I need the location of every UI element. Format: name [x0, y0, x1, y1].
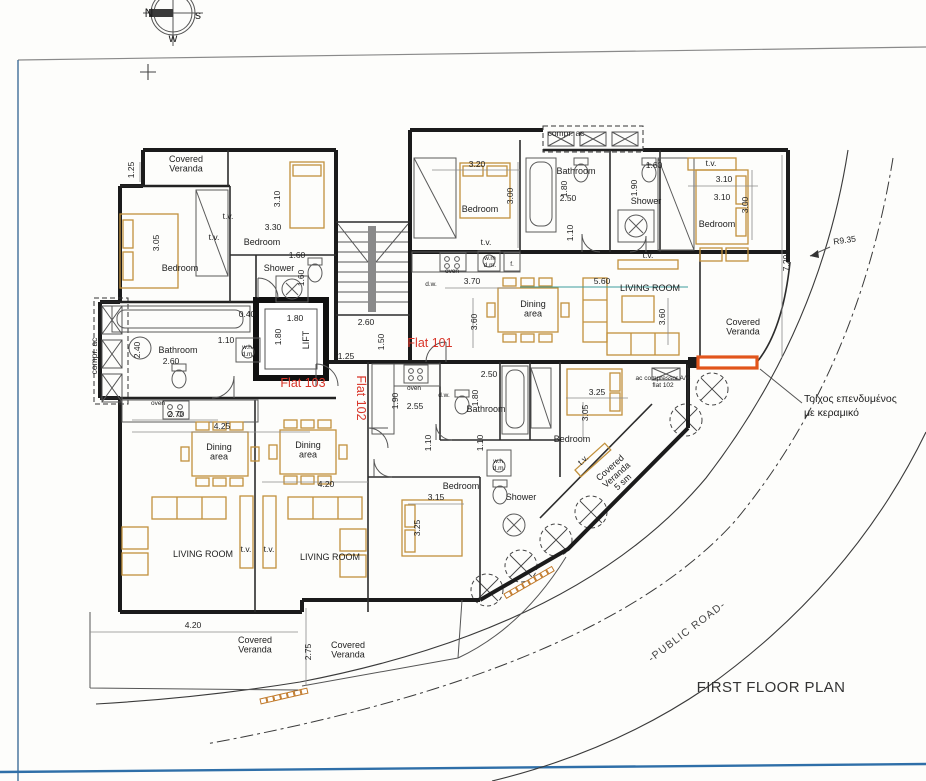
- appliance-fridge: f.: [510, 261, 514, 268]
- appliance-wm-dm: w.md.m.: [483, 255, 496, 269]
- dim-2-55: 2.55: [407, 401, 424, 411]
- dim-3-05: 3.05: [151, 234, 161, 251]
- tv-label: t.v.: [264, 544, 275, 554]
- appliance-oven-101: oven: [445, 268, 459, 275]
- dim-3-00: 3.00: [505, 187, 515, 204]
- dim-7-20: 7.20: [781, 254, 791, 271]
- appliance-dw-101: d.w.: [425, 281, 437, 288]
- room-covered-veranda-sw: CoveredVeranda: [238, 635, 272, 655]
- dim-2-50-bath: 2.50: [560, 193, 577, 203]
- sofa-set: [583, 260, 679, 355]
- tv-label-diag: t.v.: [576, 452, 591, 467]
- bed: [120, 214, 178, 288]
- dim-1-60b: 1.60: [296, 269, 306, 286]
- stairs: [338, 224, 408, 312]
- bed: [402, 500, 462, 556]
- dim-2-50-102: 2.50: [481, 369, 498, 379]
- room-covered-veranda-e: CoveredVeranda: [726, 317, 760, 337]
- dim-lift-w: 1.80: [287, 313, 304, 323]
- drawing-title: FIRST FLOOR PLAN: [697, 679, 846, 696]
- dim-3-30: 3.30: [265, 222, 282, 232]
- appliance-wh-dm-102: w.h.d.m.: [492, 458, 505, 472]
- room-bedroom-101a: Bedroom: [462, 204, 499, 214]
- tv-unit: [240, 496, 253, 568]
- dim-3-25-small: 3.25: [412, 519, 422, 536]
- dim-3-20: 3.20: [469, 159, 486, 169]
- dim-1-25-hall: 1.25: [338, 351, 355, 361]
- tv-label: t.v.: [706, 158, 717, 168]
- radius-label: R9.35: [833, 233, 857, 246]
- dim-3-60w: 3.60: [469, 313, 479, 330]
- compass-s: s: [195, 8, 201, 22]
- dim-1-60-shower: 1.60: [646, 160, 663, 170]
- dim-5-60: 5.60: [594, 276, 611, 286]
- floor-plan-page: N s w Flat 101 Flat 102 Flat 103 R9.35 Τ…: [0, 0, 926, 781]
- room-shower-103: Shower: [264, 263, 295, 273]
- dim-1-90-102: 1.90: [390, 392, 400, 409]
- flat-103-label: Flat 103: [280, 376, 325, 390]
- flat-102-label: Flat 102: [354, 375, 368, 420]
- dimension-lines: [90, 155, 782, 686]
- dim-1-25: 1.25: [126, 161, 136, 178]
- room-bathroom-101: Bathroom: [556, 166, 595, 176]
- ac-compressor-note: ac compressor A/Cflat 102: [636, 375, 691, 389]
- tv-label: t.v.: [223, 211, 234, 221]
- wall-note-line1: Τοίχος επενδυμένος: [804, 393, 897, 405]
- dim-3-15: 3.15: [428, 492, 445, 502]
- dim-2-70: 2.70: [168, 409, 185, 419]
- dim-3-25-bed: 3.25: [589, 387, 606, 397]
- dim-1-60: 1.60: [289, 250, 306, 260]
- public-road-label: -PUBLIC ROAD-: [646, 599, 728, 665]
- room-bedroom-101b: Bedroom: [699, 219, 736, 229]
- dim-1-10-bath: 1.10: [565, 224, 575, 241]
- dim-1-10b-102: 1.10: [475, 434, 485, 451]
- dim-2-60-hall: 2.60: [358, 317, 375, 327]
- room-bedroom-102a: Bedroom: [554, 434, 591, 444]
- flat-101-label: Flat 101: [407, 336, 452, 350]
- radius-arrow: [810, 250, 819, 258]
- appliance-dw-102: d.w.: [438, 392, 450, 399]
- compass-w: w: [168, 31, 178, 45]
- dim-3-00-ne: 3.00: [740, 196, 750, 213]
- room-bedroom-102b: Bedroom: [443, 481, 480, 491]
- dim-3-60e: 3.60: [657, 308, 667, 325]
- tv-label: t.v.: [241, 544, 252, 554]
- room-dining-103: Diningarea: [206, 442, 232, 462]
- tv-label: t.v.: [481, 237, 492, 247]
- dim-3-05-bed: 3.05: [580, 404, 590, 421]
- room-bedroom-n2: Bedroom: [244, 237, 281, 247]
- room-covered-veranda-s: CoveredVeranda: [331, 640, 365, 660]
- dim-lift-h: 1.80: [273, 328, 283, 345]
- bed: [290, 162, 324, 228]
- compr-ac-left: compr. ac: [89, 337, 99, 375]
- dim-0-40: 0.40: [239, 309, 256, 319]
- walls: [90, 130, 790, 690]
- room-lift: LIFT: [301, 330, 311, 349]
- sofa-set: [122, 497, 226, 575]
- sofa-set: [288, 497, 366, 577]
- room-covered-veranda-nw: CoveredVeranda: [169, 154, 203, 174]
- appliance-oven-103: oven: [151, 400, 165, 407]
- dim-4-25: 4.25: [214, 421, 231, 431]
- room-bathroom-102: Bathroom: [466, 404, 505, 414]
- dim-2-40: 2.40: [132, 341, 142, 358]
- paving-strip: [260, 567, 554, 704]
- registration-cross: [140, 64, 156, 80]
- tv-label: t.v.: [643, 250, 654, 260]
- room-living-102: LIVING ROOM: [300, 552, 360, 562]
- dim-3-10-ne: 3.10: [716, 174, 733, 184]
- wall-note-line2: με κεραμικό: [804, 407, 859, 419]
- compr-ac-top: compr. ac: [548, 128, 586, 138]
- room-shower-101: Shower: [631, 196, 662, 206]
- dim-1-10a-102: 1.10: [423, 434, 433, 451]
- room-living-103: LIVING ROOM: [173, 549, 233, 559]
- tv-label: t.v.: [209, 232, 220, 242]
- room-living-101: LIVING ROOM: [620, 283, 680, 293]
- dim-2-60: 2.60: [163, 356, 180, 366]
- appliance-oven-102: oven: [407, 385, 421, 392]
- room-bathroom-103: Bathroom: [158, 345, 197, 355]
- dim-1-10: 1.10: [218, 335, 235, 345]
- dim-2-75: 2.75: [303, 643, 313, 660]
- compass-n: N: [145, 6, 154, 20]
- tv-unit: [263, 496, 276, 568]
- room-bedroom-nw: Bedroom: [162, 263, 199, 273]
- room-dining-102: Diningarea: [295, 440, 321, 460]
- appliance-wh-dm: w.hd.m: [241, 344, 252, 358]
- dim-3-10-bed: 3.10: [714, 192, 731, 202]
- dim-3-70: 3.70: [464, 276, 481, 286]
- room-shower-102: Shower: [506, 492, 537, 502]
- dim-4-20: 4.20: [318, 479, 335, 489]
- dim-1-90-shower: 1.90: [629, 179, 639, 196]
- dim-4-20-veranda: 4.20: [185, 620, 202, 630]
- dim-3-10: 3.10: [272, 190, 282, 207]
- room-dining-101: Diningarea: [520, 299, 546, 319]
- ceramic-clad-wall: [698, 357, 757, 368]
- dim-1-50: 1.50: [376, 333, 386, 350]
- floor-plan-canvas: N s w Flat 101 Flat 102 Flat 103 R9.35 Τ…: [0, 0, 926, 781]
